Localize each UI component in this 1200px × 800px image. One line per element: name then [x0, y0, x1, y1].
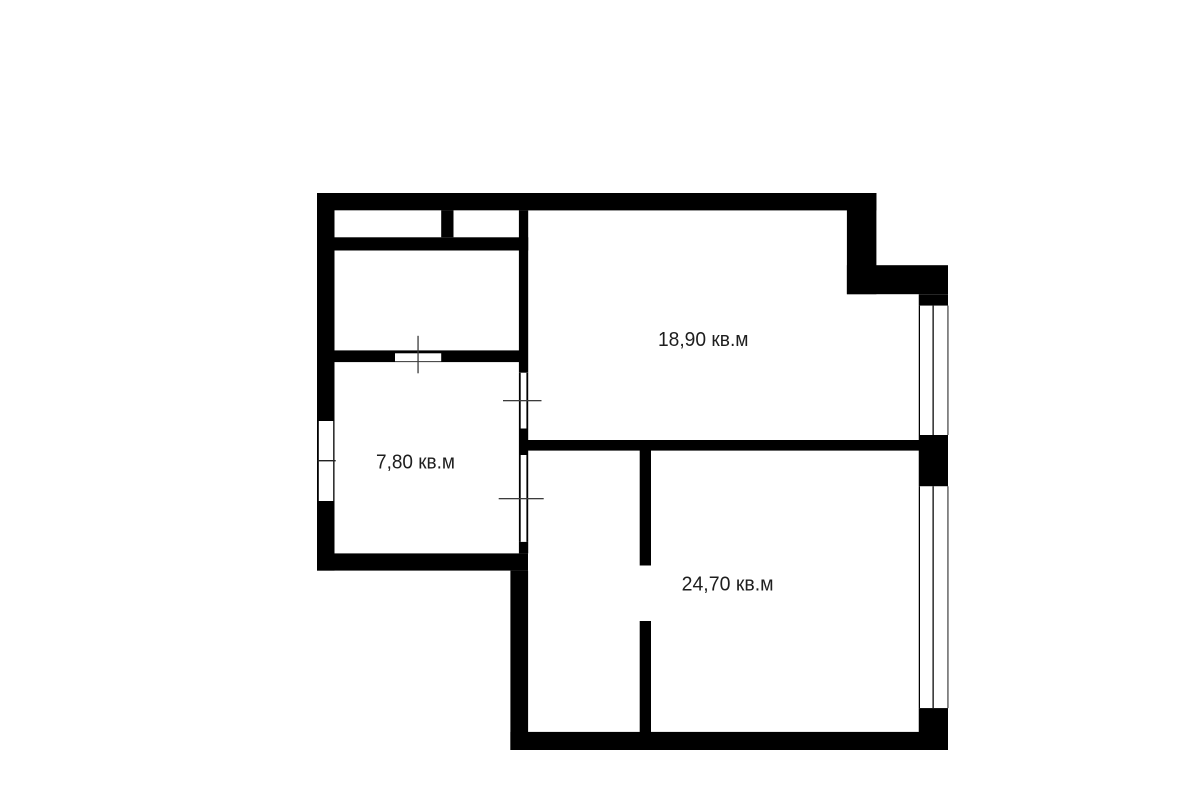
svg-text:24,70 кв.м: 24,70 кв.м — [682, 573, 774, 595]
svg-text:7,80 кв.м: 7,80 кв.м — [376, 451, 455, 473]
svg-text:18,90 кв.м: 18,90 кв.м — [658, 329, 749, 351]
